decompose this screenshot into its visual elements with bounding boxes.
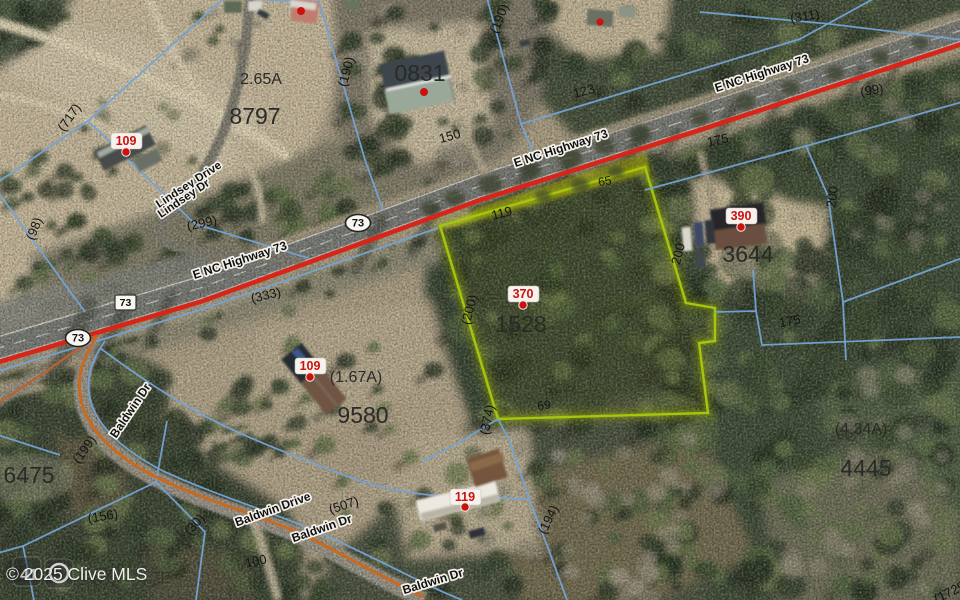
svg-text:69: 69 — [536, 397, 551, 413]
svg-text:0831: 0831 — [394, 60, 445, 86]
svg-text:109: 109 — [116, 134, 137, 148]
svg-text:© 2025 Clive MLS: © 2025 Clive MLS — [6, 564, 147, 584]
svg-text:390: 390 — [731, 209, 752, 223]
svg-text:65: 65 — [597, 173, 613, 189]
svg-text:(4.34A): (4.34A) — [835, 421, 887, 438]
svg-text:8797: 8797 — [229, 103, 280, 129]
svg-text:4445: 4445 — [840, 455, 891, 481]
svg-text:3644: 3644 — [722, 241, 773, 267]
svg-text:(1.67A): (1.67A) — [330, 369, 382, 386]
svg-text:73: 73 — [72, 332, 84, 344]
svg-text:6475: 6475 — [3, 462, 54, 488]
svg-text:73: 73 — [120, 297, 132, 309]
svg-text:73: 73 — [352, 217, 364, 229]
svg-text:2.65A: 2.65A — [240, 71, 282, 88]
svg-text:119: 119 — [455, 490, 475, 504]
svg-text:200: 200 — [823, 185, 841, 208]
svg-text:109: 109 — [300, 359, 321, 373]
svg-text:9580: 9580 — [337, 402, 388, 428]
svg-text:(99): (99) — [859, 81, 884, 99]
svg-text:1528: 1528 — [495, 311, 546, 337]
svg-text:370: 370 — [513, 287, 534, 301]
